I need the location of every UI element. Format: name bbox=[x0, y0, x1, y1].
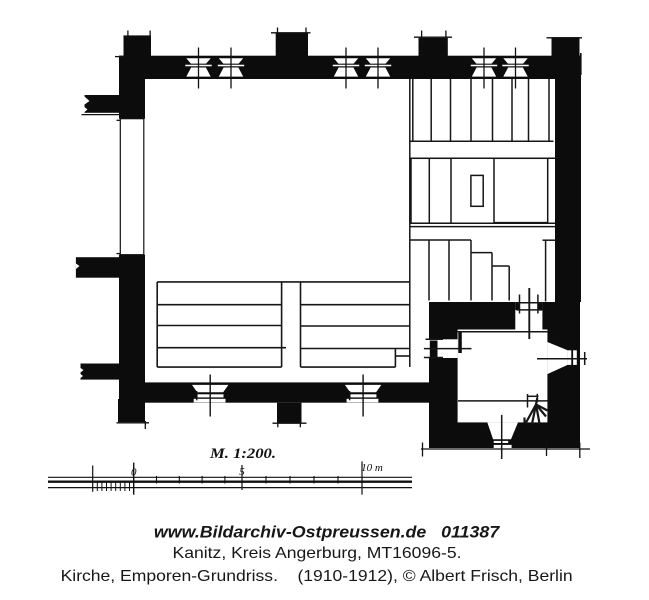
svg-text:5: 5 bbox=[239, 466, 245, 478]
svg-text:0: 0 bbox=[131, 467, 137, 479]
svg-text:M. 1:200.: M. 1:200. bbox=[209, 446, 276, 462]
svg-text:Kirche, Emporen-Grundriss.: Kirche, Emporen-Grundriss. (1910-1912), … bbox=[61, 568, 573, 585]
svg-text:www.Bildarchiv-Ostpreussen.de: www.Bildarchiv-Ostpreussen.de 011387 bbox=[154, 524, 500, 542]
svg-text:10 m: 10 m bbox=[361, 462, 383, 474]
svg-text:Kanitz, Kreis Angerburg, MT160: Kanitz, Kreis Angerburg, MT16096-5. bbox=[173, 545, 462, 562]
